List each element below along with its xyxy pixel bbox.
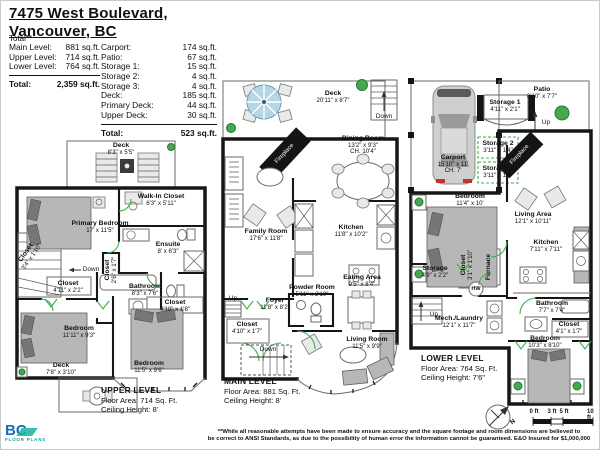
caption-title: UPPER LEVEL — [101, 385, 177, 396]
room-label-bedroom: Bedroom11'4" x 10' — [455, 193, 485, 207]
bc-floor-plans-logo: BC FLOOR PLANS — [5, 424, 46, 442]
room-dims: 2'6" x 1'7" — [111, 257, 118, 284]
disclaimer: **While all reasonable attempts have bee… — [201, 429, 597, 443]
room-dims: 12'1" x 10'11" — [515, 219, 552, 226]
summary-row: Upper Deck:30 sq.ft. — [101, 111, 217, 121]
compass-icon — [486, 405, 510, 429]
washer-dryer-icon — [487, 301, 502, 333]
scale-tick: 3 ft — [548, 409, 557, 415]
furnace-label: Furnace — [485, 254, 493, 280]
room-label-closet: Closet2'6" x 1'7" — [104, 257, 118, 284]
room-dims: 6'3" x 5'11" — [138, 201, 185, 208]
coffee-table-icon — [257, 168, 283, 186]
room-dims: 3'11" x 1'4" — [483, 173, 514, 180]
plant-icon — [555, 106, 569, 120]
summary-total: Total:523 sq.ft. — [101, 124, 217, 138]
down-label: Down — [376, 113, 392, 120]
room-dims: 17'6" x 11'8" — [245, 236, 288, 243]
summary-label: Total: — [101, 128, 123, 138]
room-label-deck: Deck7'8" x 3'10" — [46, 362, 76, 376]
down-label: Down — [83, 266, 99, 273]
room-dims: 4'11" x 2'1" — [490, 107, 521, 114]
summary-row: Lower Level:764 sq.ft. — [9, 62, 100, 72]
area-summary-right: Carport:174 sq.ft. Patio:67 sq.ft. Stora… — [101, 43, 217, 138]
room-dims: 9'5" x 8'4" — [343, 282, 381, 289]
room-dims: 8' x 6'3" — [156, 249, 181, 256]
kitchen-fixtures-icon — [295, 204, 395, 285]
room-label-deck: Deck20'11" x 8'7" — [317, 90, 350, 104]
umbrella-table-icon — [243, 84, 292, 123]
deck-lounger-icon — [96, 153, 159, 182]
room-label-bathroom: Bathroom8'3" x 7'6" — [129, 283, 161, 297]
caption-ceiling: Ceiling Height: 7'6" — [421, 373, 497, 382]
room-dims: 7'8" x 3'10" — [46, 370, 76, 377]
summary-label: Lower Level: — [9, 62, 57, 72]
room-dims: 17' x 11'5" — [71, 228, 128, 235]
summary-value: 2,359 sq.ft. — [57, 79, 100, 89]
dining-table-icon — [332, 154, 394, 208]
room-label-storage2: Storage 23'11" x 1'4" — [483, 140, 514, 154]
down-label: Down — [260, 346, 276, 353]
logo-subtext: FLOOR PLANS — [5, 438, 46, 442]
armchair-icon — [244, 204, 266, 226]
tv-unit-icon — [225, 157, 243, 227]
room-label-living-area: Living Area12'1" x 10'11" — [515, 211, 552, 225]
room-extra: CH. 10'4" — [342, 149, 384, 156]
up-label: Up — [542, 119, 550, 126]
room-dims: 8'3" x 7'6" — [129, 291, 161, 298]
room-label-kitchen: Kitchen7'11" x 7'11" — [530, 239, 563, 253]
room-label-bedroom: Bedroom10'3" x 8'10" — [528, 335, 561, 349]
room-dims: 3'11" x 1'4" — [483, 148, 514, 155]
room-label-walk-in-closet: Walk-In Closet6'3" x 5'11" — [138, 193, 185, 207]
room-label-ensuite: Ensuite8' x 6'3" — [156, 241, 181, 255]
room-label-primary-bedroom: Primary Bedroom17' x 11'5" — [71, 220, 128, 234]
summary-label: Upper Deck: — [101, 111, 148, 121]
summary-value: 764 sq.ft. — [66, 62, 100, 72]
room-label-foyer: Foyer11'8" x 8'2" — [260, 297, 290, 311]
powder-fixtures-icon — [297, 301, 322, 323]
room-label-storage1: Storage 14'11" x 2'1" — [490, 99, 521, 113]
area-summary-left: Main Level:881 sq.ft. Upper Level:714 sq… — [9, 43, 100, 89]
address-line2: Vancouver, BC — [9, 23, 168, 41]
summary-label: Total: — [9, 79, 31, 89]
foyer-stairs-icon — [225, 301, 241, 317]
room-label-storage3: Storage 33'11" x 1'4" — [483, 165, 514, 179]
main-level-caption: MAIN LEVEL Floor Area: 881 Sq. Ft. Ceili… — [224, 376, 300, 405]
room-label-closet: Closet4'11" x 2'2" — [53, 280, 83, 294]
scale-tick: 0 ft — [530, 409, 539, 415]
caption-area: Floor Area: 881 Sq. Ft. — [224, 387, 300, 396]
room-dims: 7'11" x 7'11" — [530, 247, 563, 254]
room-dims: 12'1" x 11'7" — [435, 323, 483, 330]
scale-tick: 5 ft — [560, 409, 569, 415]
room-label-bedroom: Bedroom11'5" x 9'6" — [134, 360, 164, 374]
room-label-family-room: Family Room17'6" x 11'8" — [245, 228, 288, 242]
room-dims: 11'8" x 8'2" — [260, 305, 290, 312]
bed-icon — [511, 349, 584, 403]
room-label-bedroom: Bedroom11'11" x 9'3" — [63, 325, 96, 339]
room-label-closet: Closet4'10" x 1'7" — [232, 321, 262, 335]
room-label-carport: Carport15'10" x 11'CH. 7' — [438, 154, 469, 175]
disclaimer-line2: be correct to ANSI Standards, as due to … — [201, 436, 597, 443]
room-extra: CH. 7' — [438, 168, 469, 175]
room-name: Furnace — [485, 254, 493, 280]
room-label-closet: Closet3'1" x 1'10" — [460, 250, 474, 280]
room-label-bathroom: Bathroom7'7" x 7'4" — [536, 300, 568, 314]
caption-ceiling: Ceiling Height: 8' — [101, 405, 177, 414]
room-dims: 8'3" x 5'5" — [108, 150, 135, 157]
room-label-mech-laundry: Mech./Laundry12'1" x 11'7" — [435, 315, 483, 329]
room-dims: 20'11" x 8'7" — [317, 98, 350, 105]
plant-icon — [357, 80, 368, 91]
room-dims: 4'10" x 1'7" — [232, 329, 262, 336]
room-dims: 5'11" x 2'10" — [289, 292, 335, 299]
room-label-patio: Patio8'10" x 7'7" — [527, 86, 557, 100]
room-dims: 3'1" x 1'10" — [467, 250, 474, 280]
caption-title: MAIN LEVEL — [224, 376, 300, 387]
scale-tick: 10 ft — [587, 409, 595, 421]
room-label-kitchen: Kitchen11'8" x 10'2" — [335, 224, 368, 238]
plant-icon — [168, 144, 175, 151]
up-label: Up — [229, 295, 237, 302]
caption-area: Floor Area: 764 Sq. Ft. — [421, 364, 497, 373]
room-dims: 11'4" x 10' — [455, 201, 485, 208]
floor-plan-sheet: 7475 West Boulevard, Vancouver, BC Total… — [0, 0, 600, 450]
lower-level-caption: LOWER LEVEL Floor Area: 764 Sq. Ft. Ceil… — [421, 353, 497, 382]
room-dims: 11'11" x 9'3" — [63, 333, 96, 340]
room-label-living-room: Living Room11'5" x 9'9" — [346, 336, 387, 350]
room-label-closet: Closet4'10" x 1'8" — [160, 299, 190, 313]
hw-label: HW — [471, 286, 480, 292]
caption-ceiling: Ceiling Height: 8' — [224, 396, 300, 405]
page-title: 7475 West Boulevard, Vancouver, BC — [9, 5, 168, 40]
summary-value: 523 sq.ft. — [181, 128, 217, 138]
room-dims: 10'3" x 8'10" — [528, 343, 561, 350]
room-label-powder-room: Powder Room5'11" x 2'10" — [289, 284, 335, 298]
summary-total: Total:2,359 sq.ft. — [9, 75, 100, 89]
room-label-dining-room: Dining Room13'2" x 9'3"CH. 10'4" — [342, 135, 384, 156]
room-dims: 4'10" x 1'8" — [160, 307, 190, 314]
room-dims: 11'5" x 9'6" — [134, 368, 164, 375]
room-label-closet: Closet4'1" x 1'7" — [556, 321, 583, 335]
room-label-upper-deck: Deck8'3" x 5'5" — [108, 142, 135, 156]
disclaimer-line1: **While all reasonable attempts have bee… — [201, 429, 597, 436]
caption-area: Floor Area: 714 Sq. Ft. — [101, 396, 177, 405]
upper-level-caption: UPPER LEVEL Floor Area: 714 Sq. Ft. Ceil… — [101, 385, 177, 414]
address-line1: 7475 West Boulevard, — [9, 5, 168, 23]
room-dims: 4'11" x 2'2" — [53, 288, 83, 295]
room-label-eating-area: Eating Area9'5" x 8'4" — [343, 274, 381, 288]
summary-value: 30 sq.ft. — [187, 111, 217, 121]
room-dims: 11'8" x 10'2" — [335, 232, 368, 239]
room-dims: 11'5" x 9'9" — [346, 344, 387, 351]
room-label-storage: Storage4'9" x 2'2" — [422, 265, 449, 279]
caption-title: LOWER LEVEL — [421, 353, 497, 364]
eating-table-icon — [348, 291, 374, 329]
plant-icon — [227, 124, 236, 133]
room-dims: 4'9" x 2'2" — [422, 273, 449, 280]
room-dims: 7'7" x 7'4" — [536, 308, 568, 315]
scale-bar — [533, 417, 593, 426]
room-dims: 8'10" x 7'7" — [527, 94, 557, 101]
